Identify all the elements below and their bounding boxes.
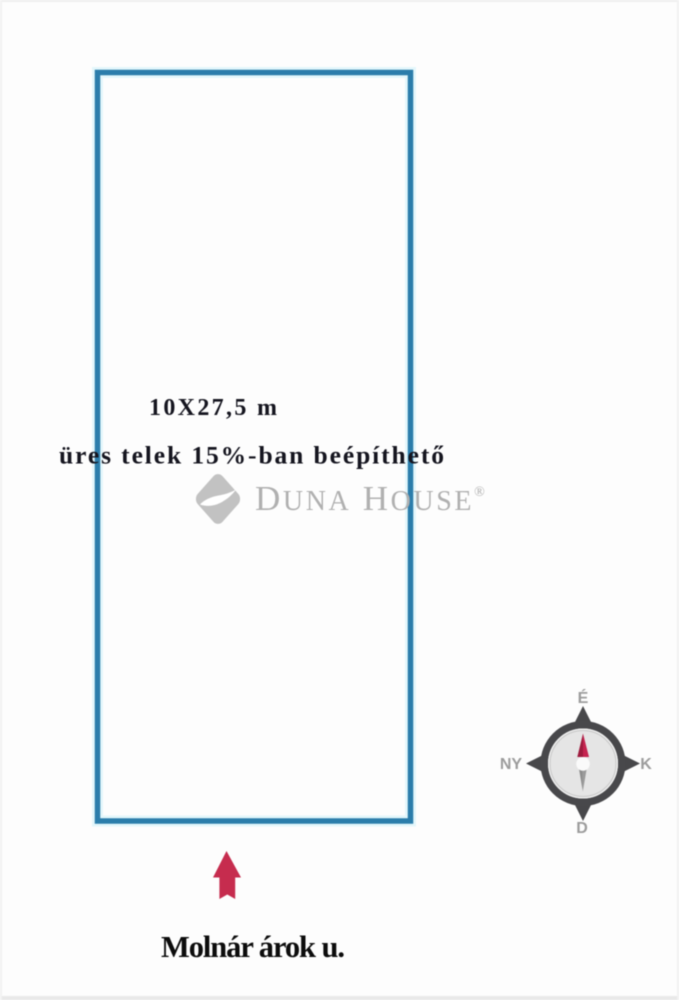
svg-text:NY: NY xyxy=(500,756,523,773)
svg-text:K: K xyxy=(640,756,652,773)
svg-text:üres telek 15%-ban beépíthető: üres telek 15%-ban beépíthető xyxy=(59,441,444,470)
svg-text:10X27,5 m: 10X27,5 m xyxy=(149,395,278,421)
svg-text:É: É xyxy=(578,688,589,707)
svg-text:Molnár árok u.: Molnár árok u. xyxy=(161,930,345,964)
svg-text:D: D xyxy=(576,820,588,837)
